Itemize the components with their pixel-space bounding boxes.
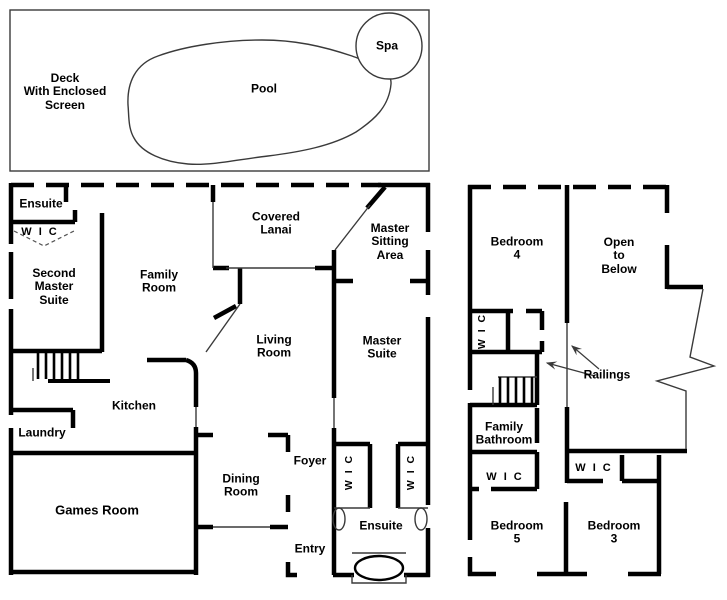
label-ensuite-top: Ensuite [19, 197, 62, 210]
label-open-to-below: Open to Below [601, 236, 636, 276]
label-wic-master-right: W I C [406, 454, 418, 490]
label-wic-master-left: W I C [344, 454, 356, 490]
label-ensuite-bottom: Ensuite [359, 519, 402, 532]
label-living-room: Living Room [256, 334, 291, 361]
label-covered-lanai: Covered Lanai [252, 211, 300, 238]
label-master-suite: Master Suite [363, 335, 402, 362]
label-foyer: Foyer [294, 454, 327, 467]
label-deck: Deck With Enclosed Screen [24, 72, 107, 112]
label-kitchen: Kitchen [112, 399, 156, 412]
bathtub-icon [355, 556, 403, 580]
stairs-first-floor [38, 352, 78, 379]
sink-icon [415, 508, 427, 530]
label-entry: Entry [295, 542, 326, 555]
label-railings: Railings [584, 368, 631, 381]
label-spa: Spa [376, 39, 398, 52]
label-dining-room: Dining Room [222, 473, 259, 500]
label-bedroom4: Bedroom 4 [491, 236, 544, 263]
floorplan-canvas: Deck With Enclosed Screen Pool Spa Ensui… [0, 0, 727, 600]
label-wic-bathroom: W I C [486, 471, 524, 483]
pool-outline [128, 40, 391, 164]
label-wic-top: W I C [21, 226, 59, 238]
label-bedroom3: Bedroom 3 [588, 520, 641, 547]
label-family-bathroom: Family Bathroom [476, 421, 533, 448]
stairs-second-floor [500, 377, 532, 404]
label-wic-bedroom3: W I C [575, 462, 613, 474]
label-laundry: Laundry [18, 426, 65, 439]
label-games-room: Games Room [55, 504, 139, 519]
label-family-room: Family Room [140, 269, 178, 296]
label-bedroom5: Bedroom 5 [491, 520, 544, 547]
label-master-sitting: Master Sitting Area [371, 222, 410, 262]
break-line-zigzag [657, 289, 714, 449]
label-second-master: Second Master Suite [32, 267, 75, 307]
label-pool: Pool [251, 82, 277, 95]
label-wic-bedroom4: W I C [477, 313, 489, 349]
